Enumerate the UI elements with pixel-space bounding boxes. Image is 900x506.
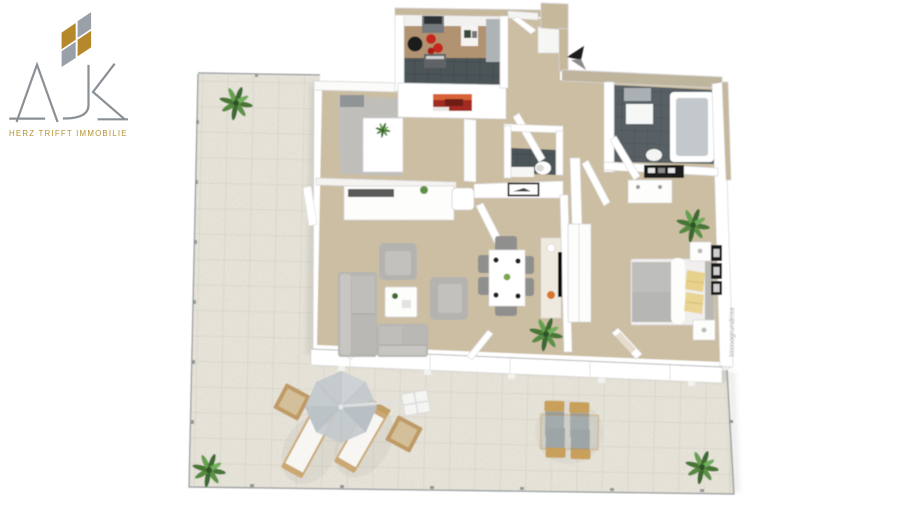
svg-text:HERZ TRIFFT IMMOBILIE: HERZ TRIFFT IMMOBILIE bbox=[9, 129, 128, 138]
svg-text:Immogrundriss: Immogrundriss bbox=[727, 307, 736, 357]
